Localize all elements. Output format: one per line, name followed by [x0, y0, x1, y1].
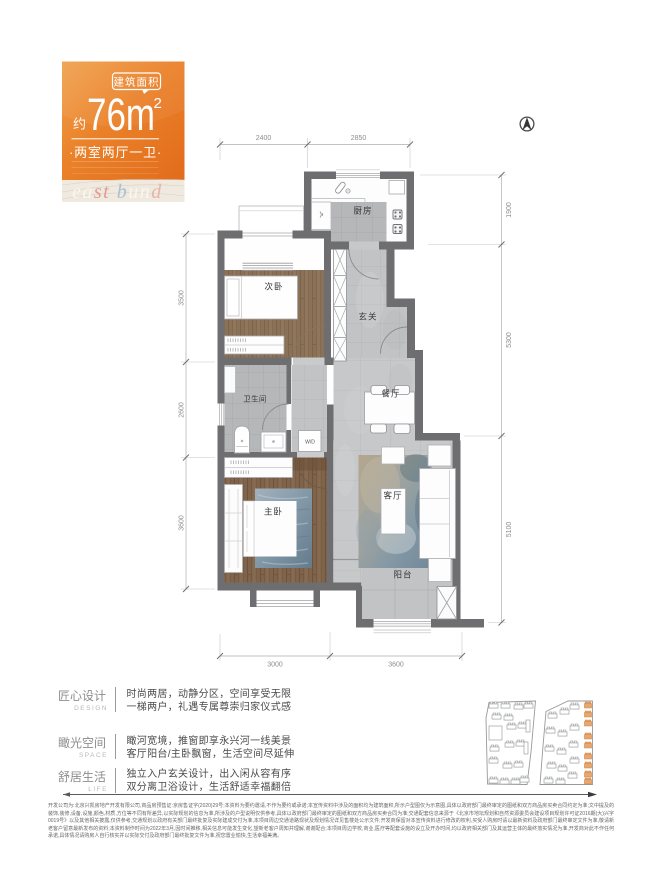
- svg-text:·两室两厅一卫·: ·两室两厅一卫·: [69, 145, 162, 160]
- svg-text:2: 2: [154, 95, 162, 112]
- svg-text:厨房: 厨房: [353, 206, 372, 216]
- svg-text:约: 约: [73, 117, 86, 132]
- svg-text:W/D: W/D: [305, 440, 315, 446]
- svg-text:建筑面积: 建筑面积: [114, 76, 160, 89]
- svg-text:east bund: east bund: [72, 181, 163, 203]
- svg-text:阳台: 阳台: [393, 570, 412, 580]
- svg-text:玄关: 玄关: [358, 312, 377, 322]
- svg-text:3600: 3600: [388, 662, 404, 669]
- svg-text:5100: 5100: [506, 522, 513, 538]
- svg-text:客厅: 客厅: [383, 491, 402, 501]
- svg-text:2850: 2850: [351, 135, 367, 142]
- svg-text:2600: 2600: [179, 402, 186, 418]
- svg-text:3000: 3000: [267, 662, 283, 669]
- svg-text:餐厅: 餐厅: [381, 389, 400, 399]
- svg-text:次卧: 次卧: [264, 282, 283, 292]
- svg-text:1900: 1900: [506, 202, 513, 218]
- svg-text:76m: 76m: [87, 89, 155, 140]
- svg-text:3600: 3600: [179, 515, 186, 531]
- svg-text:卫生间: 卫生间: [243, 394, 266, 404]
- svg-text:3500: 3500: [179, 290, 186, 306]
- svg-text:5300: 5300: [506, 332, 513, 348]
- svg-text:主卧: 主卧: [264, 507, 283, 517]
- svg-text:2400: 2400: [256, 135, 272, 142]
